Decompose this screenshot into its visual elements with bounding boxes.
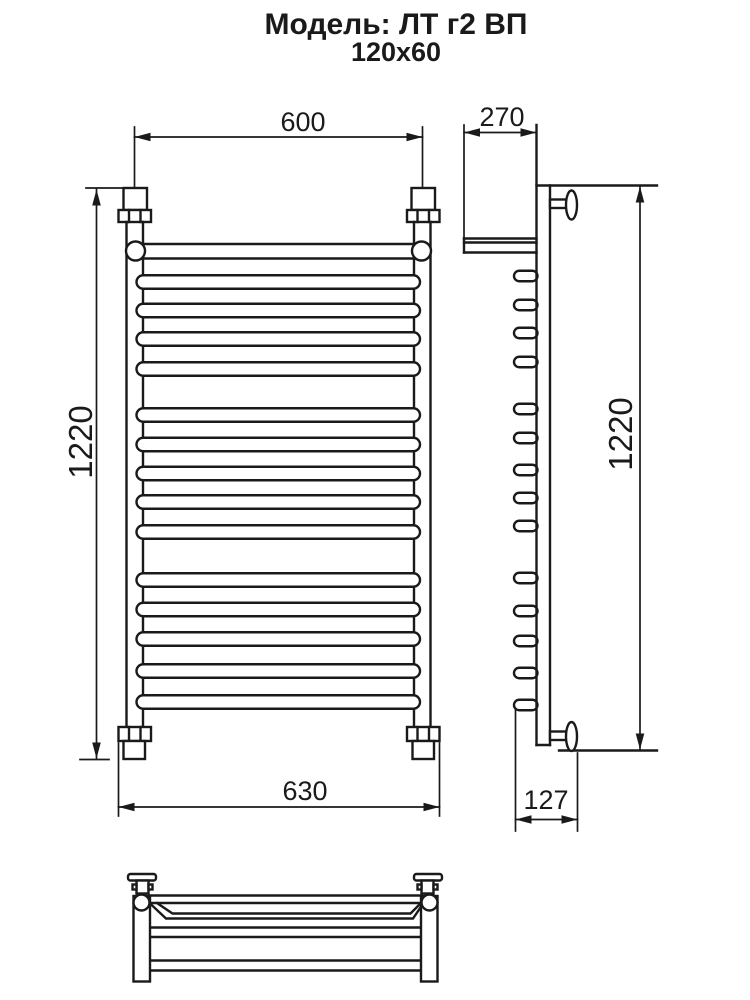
towel-rung	[137, 408, 421, 422]
riser-joint	[134, 895, 150, 911]
dim-bottom-width-label: 630	[282, 776, 327, 806]
towel-rung	[137, 362, 421, 376]
towel-rung	[137, 603, 421, 617]
dim-bottom-width: 630	[119, 743, 440, 816]
nut	[407, 210, 440, 222]
shelf-top-rail	[149, 896, 422, 904]
towel-rung-end	[514, 404, 538, 415]
dim-side-height: 1220	[602, 187, 644, 750]
arrowhead	[516, 815, 532, 824]
arrowhead	[407, 133, 423, 142]
wall-bracket-top	[550, 191, 577, 220]
towel-rung-end	[514, 465, 538, 476]
side-view: 270 1220 127	[464, 102, 657, 831]
towel-rung	[137, 695, 421, 709]
arrowhead	[464, 128, 480, 137]
dim-front-height: 1220	[62, 188, 125, 760]
shelf-bracket-right	[414, 874, 442, 894]
arrowhead	[135, 133, 151, 142]
bracket-cap	[566, 191, 577, 220]
towel-rung-end	[514, 521, 538, 532]
front-view: 600 1220 630	[62, 107, 440, 816]
bracket-collar	[133, 885, 137, 890]
shelf-pan-outer	[150, 903, 424, 919]
bracket-collar	[149, 885, 153, 890]
shelf-bracket-left	[128, 874, 156, 894]
dim-front-height-label: 1220	[62, 405, 99, 478]
riser-joint	[422, 895, 438, 911]
size-subtitle: 120x60	[351, 37, 441, 67]
towel-rail-technical-drawing: Модель: ЛТ г2 ВП 120x60	[0, 0, 750, 1000]
towel-rung	[137, 467, 421, 481]
shelf-bottom-rail	[150, 961, 421, 971]
wall-bracket-bottom	[550, 722, 577, 751]
dim-top-width: 600	[135, 107, 423, 187]
drawing-page: Модель: ЛТ г2 ВП 120x60	[0, 0, 750, 1000]
arrowhead	[424, 803, 440, 812]
towel-rung-end	[514, 357, 538, 368]
arrowhead	[119, 803, 135, 812]
towel-rung-end	[514, 606, 538, 617]
valve-body	[124, 188, 148, 210]
dim-side-height-label: 1220	[602, 397, 639, 470]
bracket-stem	[137, 881, 149, 894]
arrowhead	[636, 187, 645, 203]
towel-rung	[137, 664, 421, 678]
towel-rung	[137, 304, 421, 318]
towel-rung-end	[514, 668, 538, 679]
dim-top-depth: 270	[464, 102, 537, 238]
collector-joint	[126, 242, 145, 261]
towel-rung	[137, 632, 421, 646]
side-post	[537, 125, 551, 745]
towel-rung-end	[514, 328, 538, 339]
towel-rung-end	[514, 636, 538, 647]
shelf-pan	[150, 903, 424, 919]
pipe-stub	[413, 741, 435, 759]
towel-rung	[137, 275, 421, 289]
bracket-cap	[566, 722, 577, 751]
towel-rung-end	[514, 700, 538, 711]
towel-rung-end	[514, 493, 538, 504]
arrowhead	[636, 734, 645, 750]
dim-top-depth-label: 270	[479, 102, 524, 132]
towel-rung-end	[514, 271, 538, 282]
shelf-middle-rail	[150, 928, 421, 938]
towel-rung	[137, 525, 421, 539]
top-collector-rung	[126, 242, 431, 261]
valve-body	[412, 188, 436, 210]
shelf-pan-inner	[157, 903, 421, 914]
pipe-stub	[124, 741, 146, 759]
towel-rung	[137, 573, 421, 587]
bracket-collar	[434, 885, 438, 890]
towel-rung-end	[514, 573, 538, 584]
towel-rung	[137, 438, 421, 452]
towel-rung	[137, 332, 421, 346]
dim-top-width-label: 600	[280, 107, 325, 137]
arrowhead	[562, 815, 578, 824]
bottom-view	[128, 874, 442, 982]
bracket-collar	[418, 885, 422, 890]
towel-rung	[137, 495, 421, 509]
nut	[119, 210, 152, 222]
arrowhead	[92, 743, 101, 759]
side-rung-ends	[514, 271, 538, 711]
shelf-side-profile	[464, 239, 537, 253]
dim-bottom-depth-label: 127	[523, 785, 568, 815]
bracket-stem	[422, 881, 434, 894]
arrowhead	[92, 190, 101, 206]
towel-rung-end	[514, 433, 538, 444]
nut	[119, 727, 152, 741]
towel-rung-end	[514, 300, 538, 311]
collector-joint	[412, 242, 431, 261]
drawing-header: Модель: ЛТ г2 ВП 120x60	[265, 8, 528, 67]
front-rungs	[137, 275, 421, 709]
nut	[407, 727, 440, 741]
